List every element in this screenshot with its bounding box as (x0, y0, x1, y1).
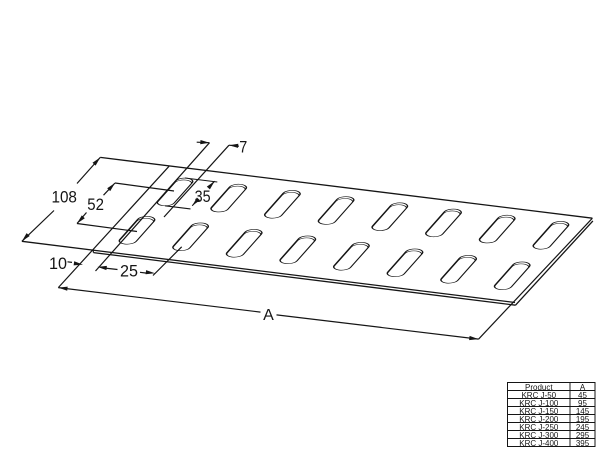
svg-text:A: A (263, 307, 274, 324)
svg-text:395: 395 (576, 439, 590, 448)
svg-text:108: 108 (51, 188, 77, 206)
svg-text:KRC J-400: KRC J-400 (519, 439, 559, 448)
svg-text:35: 35 (195, 188, 211, 206)
svg-text:52: 52 (87, 196, 104, 214)
svg-text:25: 25 (120, 263, 138, 281)
svg-text:10: 10 (49, 255, 67, 273)
svg-text:7: 7 (239, 138, 247, 156)
